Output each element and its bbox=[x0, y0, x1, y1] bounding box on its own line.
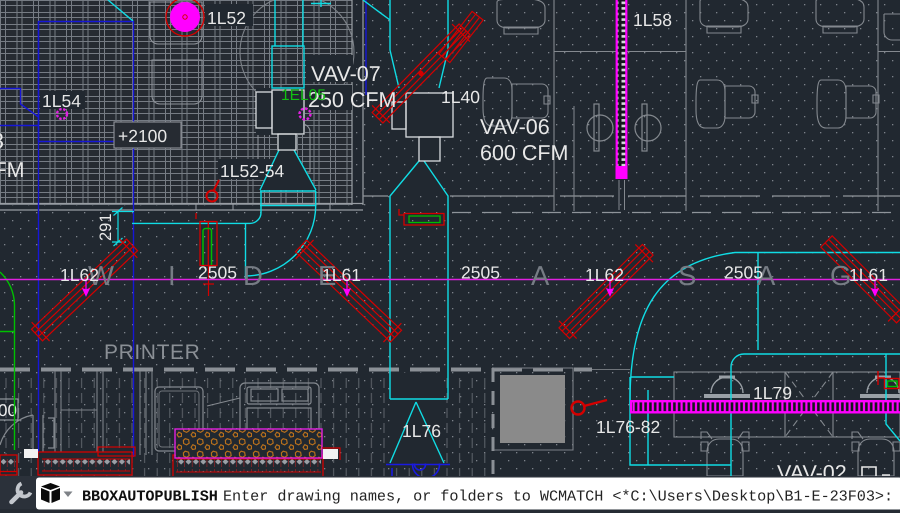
svg-text:Enter drawing names, or folder: Enter drawing names, or folders to WCMAT… bbox=[223, 488, 893, 506]
svg-text:1L62: 1L62 bbox=[585, 265, 624, 285]
svg-text:1L62: 1L62 bbox=[60, 265, 99, 285]
svg-text:1L61: 1L61 bbox=[849, 265, 888, 285]
svg-text:1L52-54: 1L52-54 bbox=[220, 161, 284, 181]
svg-text:BBOXAUTOPUBLISH: BBOXAUTOPUBLISH bbox=[82, 488, 218, 506]
svg-text:VAV-06: VAV-06 bbox=[480, 115, 550, 139]
svg-text:3: 3 bbox=[0, 129, 4, 153]
svg-text:1EL05: 1EL05 bbox=[281, 87, 326, 104]
svg-text:1L54: 1L54 bbox=[42, 91, 81, 111]
svg-text:2505: 2505 bbox=[724, 263, 763, 283]
svg-text:1L52: 1L52 bbox=[207, 8, 246, 28]
svg-text:A: A bbox=[531, 260, 550, 291]
svg-text:1L76-82: 1L76-82 bbox=[596, 417, 660, 437]
svg-text:VAV-07: VAV-07 bbox=[311, 62, 381, 86]
svg-text:+2100: +2100 bbox=[118, 126, 167, 146]
svg-text:S: S bbox=[678, 260, 696, 291]
svg-text:D: D bbox=[243, 260, 263, 291]
svg-text:PRINTER: PRINTER bbox=[104, 341, 200, 364]
svg-text:1L76: 1L76 bbox=[402, 421, 441, 441]
svg-text:1L79: 1L79 bbox=[753, 383, 792, 403]
svg-text:1L58: 1L58 bbox=[633, 10, 672, 30]
svg-text:291: 291 bbox=[97, 213, 115, 241]
svg-text:1L40: 1L40 bbox=[441, 87, 480, 107]
svg-text:1L61: 1L61 bbox=[322, 265, 361, 285]
svg-text:2505: 2505 bbox=[198, 263, 237, 283]
svg-text:CFM: CFM bbox=[0, 158, 25, 182]
svg-text:600 CFM: 600 CFM bbox=[480, 141, 568, 165]
svg-text:I: I bbox=[168, 260, 176, 291]
svg-text:2505: 2505 bbox=[461, 263, 500, 283]
